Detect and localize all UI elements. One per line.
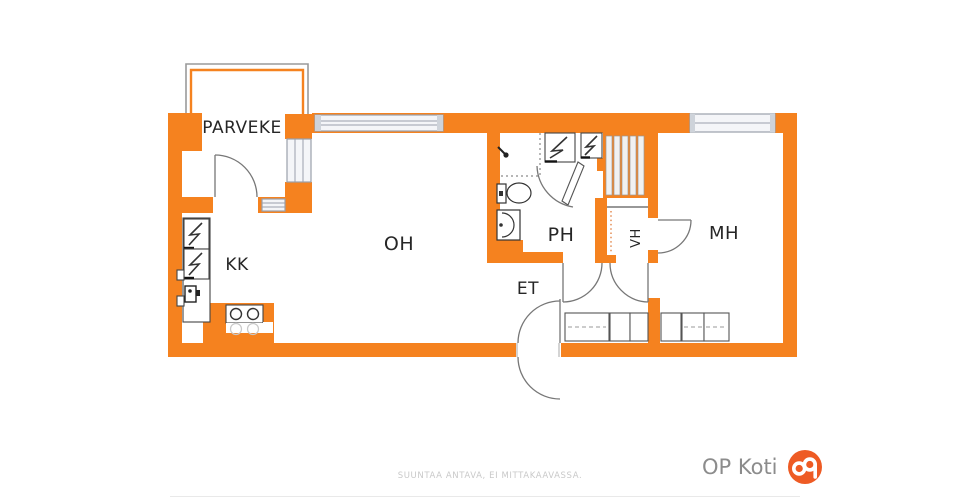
room-label-ph: PH [548,224,575,246]
brand-text: OP Koti [702,455,778,479]
op-logo-icon [786,448,824,486]
room-label-et: ET [517,279,539,299]
window-icon-balcony-side [287,139,311,182]
room-label-mh: MH [709,223,739,244]
refrigerator-icon [184,219,209,249]
wardrobes [565,313,729,341]
floorplan-canvas: PARVEKE KK OH PH ET VH MH [0,0,966,499]
room-label-vh: VH [629,228,644,248]
closet-shelves-icon [603,133,648,198]
window-icon-mh [690,114,775,132]
entry-threshold [516,343,561,357]
floorplan-page: PARVEKE KK OH PH ET VH MH SUUNTAA ANTAVA… [0,0,966,499]
freezer-icon [184,249,209,279]
toilet-icon [497,183,531,203]
room-label-parveke: PARVEKE [202,118,281,138]
door-arc-et [610,263,648,302]
dryer-icon [581,133,602,158]
door-arc-vh-mh [658,220,691,253]
door-arc-ph-entrance [563,263,602,302]
window-icon-oh [315,115,443,131]
washing-machine-icon [545,133,575,162]
room-label-kk: KK [225,255,249,275]
door-arc-ph [537,162,584,207]
brand: OP Koti [702,448,824,486]
disclaimer-text: SUUNTAA ANTAVA, EI MITTAKAAVASSA. [340,471,640,481]
page-edge-divider [170,496,800,497]
window-icon-balcony-bottom [213,197,285,213]
washbasin-icon [497,210,520,240]
room-label-oh: OH [384,233,414,255]
